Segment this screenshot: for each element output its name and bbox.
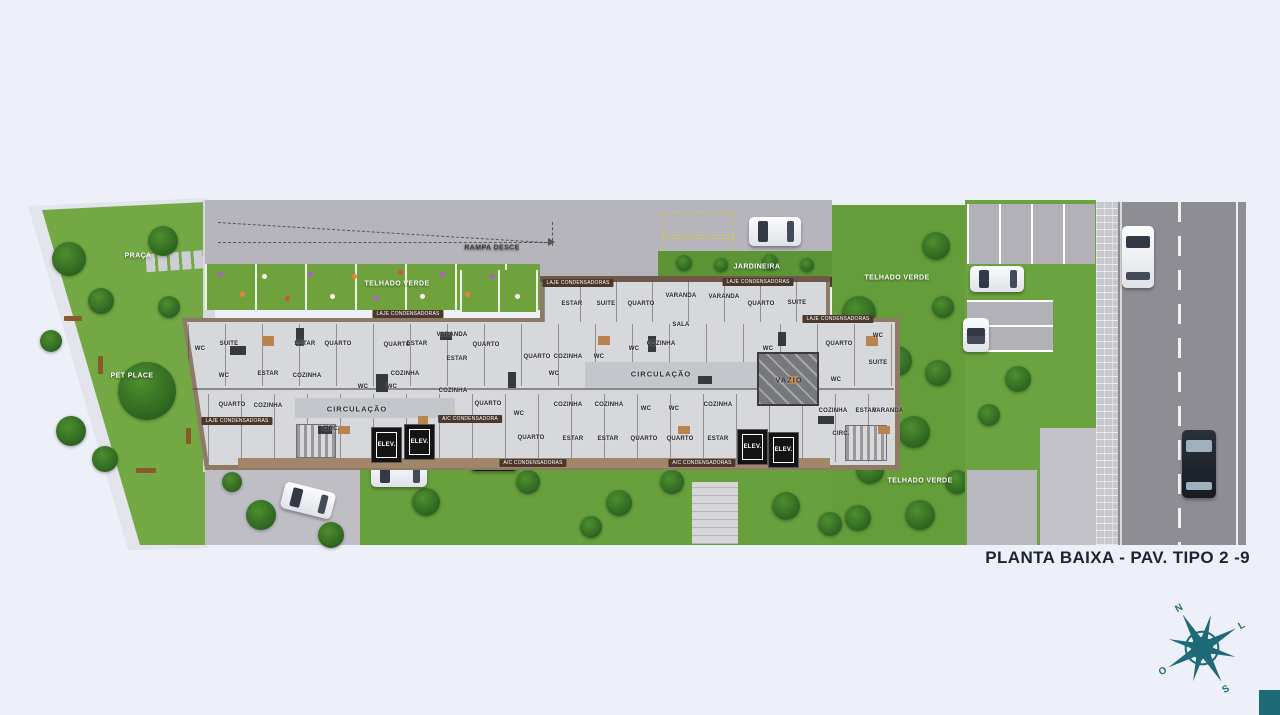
tree	[978, 404, 1000, 426]
area-label: RAMPA DESCE	[464, 245, 519, 252]
room-label: ESTAR	[708, 436, 729, 442]
room-label: CIRC.	[832, 431, 849, 437]
room-label: COZINHA	[554, 354, 583, 360]
flower	[490, 274, 495, 279]
room-label: QUARTO	[747, 301, 774, 307]
furniture	[418, 416, 428, 424]
room-label: COZINHA	[391, 371, 420, 377]
room-label: CIRCULAÇÃO	[327, 405, 387, 414]
flower	[515, 294, 520, 299]
room-label: SUITE	[597, 301, 616, 307]
room-label: WC	[629, 346, 639, 352]
room-label: WC	[195, 346, 205, 352]
flower	[352, 274, 357, 279]
compass-east-label: L	[1236, 620, 1247, 633]
bench	[98, 356, 103, 374]
room-label: SUITE	[869, 360, 888, 366]
counter	[818, 416, 834, 424]
condenser-slab-label: A/C CONDENSADORA	[438, 415, 502, 423]
shrub	[800, 258, 814, 272]
elevator-label: ELEV.	[411, 439, 429, 445]
tree	[845, 505, 871, 531]
counter	[230, 346, 246, 355]
room-label: COZINHA	[595, 402, 624, 408]
room-label: QUARTO	[472, 342, 499, 348]
room-label: VARANDA	[709, 294, 740, 300]
site-plan: PLANTA BAIXA - PAV. TIPO 2 -9 N L S O PR…	[0, 0, 1280, 715]
tree	[40, 330, 62, 352]
room-label: QUARTO	[627, 301, 654, 307]
shrub	[676, 255, 692, 271]
area-label: PRAÇA	[125, 253, 152, 260]
room-label: COZINHA	[647, 341, 676, 347]
counter	[508, 372, 516, 388]
palm-tree	[606, 490, 632, 516]
area-label: JARDINEIRA	[734, 264, 781, 271]
elevator-label: ELEV.	[378, 442, 396, 448]
elevator: ELEV.	[737, 429, 768, 465]
tree-cluster	[118, 362, 176, 420]
furniture	[338, 426, 350, 434]
counter	[698, 376, 712, 384]
condenser-slab-label: LAJE CONDENSADORAS	[542, 279, 613, 287]
room-label: QUARTO	[825, 341, 852, 347]
flower	[440, 272, 445, 277]
compass-rose: N L S O	[1150, 592, 1254, 704]
elevator-label: ELEV.	[775, 447, 793, 453]
ramp-guide-line	[218, 242, 552, 243]
room-label: WC	[549, 371, 559, 377]
condenser-slab-label: LAJE CONDENSADORAS	[722, 278, 793, 286]
area-label: TELHADO VERDE	[864, 275, 929, 282]
tree	[92, 446, 118, 472]
flower	[218, 272, 223, 277]
plan-title: PLANTA BAIXA - PAV. TIPO 2 -9	[985, 548, 1250, 568]
room-label: QUARTO	[666, 436, 693, 442]
room-label: QUARTO	[324, 341, 351, 347]
room-label: QUARTO	[474, 401, 501, 407]
parked-car	[749, 217, 801, 246]
tree	[88, 288, 114, 314]
area-label: TELHADO VERDE	[887, 478, 952, 485]
room-label: VARANDA	[437, 332, 468, 338]
condenser-slab-label: A/C CONDENSADORAS	[668, 459, 735, 467]
area-label: TELHADO VERDE	[364, 281, 429, 288]
tree	[158, 296, 180, 318]
room-label: WC	[641, 406, 651, 412]
ramp-arrow	[548, 238, 555, 246]
tree	[56, 416, 86, 446]
room-label: VARANDA	[666, 293, 697, 299]
room-label: WC	[594, 354, 604, 360]
room-label: WC	[358, 384, 368, 390]
bench	[64, 316, 82, 321]
furniture	[678, 426, 690, 434]
elevator: ELEV.	[371, 427, 402, 463]
tree	[1005, 366, 1031, 392]
palm-tree	[246, 500, 276, 530]
palm-tree	[222, 472, 242, 492]
room-label: QUARTO	[523, 354, 550, 360]
road-center-line	[1178, 202, 1181, 545]
room-label: SALA	[672, 322, 689, 328]
service-pad	[967, 470, 1037, 545]
palm-tree	[412, 488, 440, 516]
compass-south-label: S	[1220, 683, 1232, 696]
compass-west-label: O	[1157, 665, 1169, 679]
parking-stalls	[967, 204, 1095, 264]
tree	[898, 416, 930, 448]
room-label: COZINHA	[254, 403, 283, 409]
palm-tree	[660, 470, 684, 494]
room-label: SUITE	[220, 341, 239, 347]
palm-tree	[580, 516, 602, 538]
room-label: ESTAR	[295, 341, 316, 347]
flower	[374, 296, 379, 301]
room-label: WC	[387, 384, 397, 390]
room-label: WC	[873, 333, 883, 339]
elevator-label: ELEV.	[744, 444, 762, 450]
green-roof-strip	[460, 270, 538, 312]
elevator: ELEV.	[404, 424, 435, 460]
room-label: ESTAR	[563, 436, 584, 442]
flower	[420, 294, 425, 299]
elevator: ELEV.	[768, 432, 799, 468]
flower	[262, 274, 267, 279]
flower	[398, 270, 403, 275]
room-label: ESTAR	[562, 301, 583, 307]
road-side-line	[1236, 202, 1238, 545]
service-pad	[1040, 428, 1096, 545]
shrub	[714, 258, 728, 272]
room-label: ESTAR	[407, 341, 428, 347]
room-label: COZINHA	[439, 388, 468, 394]
car-on-road	[1122, 226, 1154, 288]
room-label: QUARTO	[517, 435, 544, 441]
room-label: COZINHA	[554, 402, 583, 408]
tree	[932, 296, 954, 318]
compass-north-label: N	[1173, 602, 1185, 615]
room-label: WC	[763, 346, 773, 352]
furniture	[262, 336, 274, 346]
counter	[778, 332, 786, 346]
tree	[148, 226, 178, 256]
tree	[922, 232, 950, 260]
room-label: ESTAR	[258, 371, 279, 377]
room-label: WC	[219, 373, 229, 379]
room-label: WC	[514, 411, 524, 417]
room-label: ESTAR	[598, 436, 619, 442]
flower	[240, 292, 245, 297]
area-label: PET PLACE	[111, 373, 154, 380]
car-on-road	[1182, 430, 1216, 498]
tree	[925, 360, 951, 386]
room-label: CIRCULAÇÃO	[631, 370, 691, 379]
flower	[330, 294, 335, 299]
flower	[285, 296, 290, 301]
room-label: WC	[831, 377, 841, 383]
room-label: VAZIO	[775, 376, 802, 385]
room-label: QUARTO	[218, 402, 245, 408]
room-label: WC	[669, 406, 679, 412]
condenser-slab-label: LAJE CONDENSADORAS	[201, 417, 272, 425]
flower	[465, 292, 470, 297]
room-label: SUITE	[788, 300, 807, 306]
room-label: ESTAR	[447, 356, 468, 362]
condenser-slab-label: LAJE CONDENSADORAS	[372, 310, 443, 318]
palm-tree	[772, 492, 800, 520]
room-label: COZINHA	[704, 402, 733, 408]
room-label: COZINHA	[819, 408, 848, 414]
palm-tree	[516, 470, 540, 494]
flower	[308, 272, 313, 277]
palm-tree	[318, 522, 344, 548]
tree	[52, 242, 86, 276]
room-label: QUARTO	[630, 436, 657, 442]
parked-car	[963, 318, 989, 352]
tree	[905, 500, 935, 530]
parking-outline	[662, 212, 734, 236]
palm-tree	[818, 512, 842, 536]
furniture	[598, 336, 610, 345]
room-label: COZINHA	[293, 373, 322, 379]
room-label: CIRC.	[322, 426, 339, 432]
room-label: VARANDA	[873, 408, 904, 414]
sidewalk	[1096, 202, 1118, 545]
furniture	[878, 426, 890, 434]
corner-accent	[1259, 690, 1280, 715]
bench	[186, 428, 191, 444]
bench	[136, 468, 156, 473]
parked-car	[970, 266, 1024, 292]
walk-steps	[692, 482, 738, 544]
condenser-slab-label: LAJE CONDENSADORAS	[802, 315, 873, 323]
condenser-slab-label: A/C CONDENSADORAS	[499, 459, 566, 467]
